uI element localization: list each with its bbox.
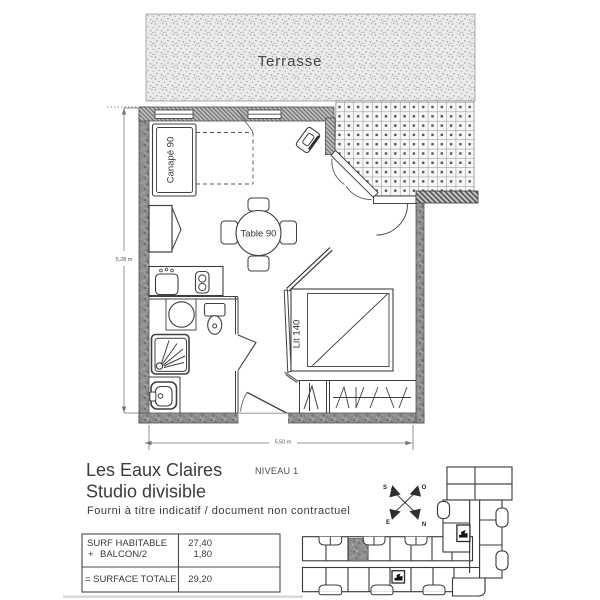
svg-text:29,20: 29,20 (188, 574, 212, 585)
svg-text:+: + (88, 549, 94, 560)
svg-text:Studio divisible: Studio divisible (86, 482, 206, 502)
svg-text:N: N (422, 522, 426, 528)
svg-text:27,40: 27,40 (188, 538, 212, 549)
svg-text:Table 90: Table 90 (241, 229, 277, 240)
svg-text:E: E (386, 520, 390, 526)
svg-text:1,80: 1,80 (194, 549, 213, 560)
svg-text:NIVEAU 1: NIVEAU 1 (255, 466, 298, 476)
svg-text:5,50 m: 5,50 m (275, 440, 292, 446)
svg-text:= SURFACE TOTALE: = SURFACE TOTALE (85, 574, 177, 585)
svg-text:Lit 140: Lit 140 (292, 320, 303, 349)
svg-text:5,28 m: 5,28 m (116, 257, 133, 263)
svg-text:Fourni à titre indicatif / doc: Fourni à titre indicatif / document non … (87, 505, 350, 517)
svg-text:Canapé 90: Canapé 90 (166, 137, 177, 183)
svg-text:Les Eaux Claires: Les Eaux Claires (86, 460, 222, 480)
svg-text:Terrasse: Terrasse (258, 53, 323, 70)
svg-text:O: O (422, 485, 427, 491)
svg-text:S: S (383, 485, 387, 491)
svg-text:BALCON/2: BALCON/2 (100, 549, 147, 560)
svg-text:SURF HABITABLE: SURF HABITABLE (87, 538, 167, 549)
